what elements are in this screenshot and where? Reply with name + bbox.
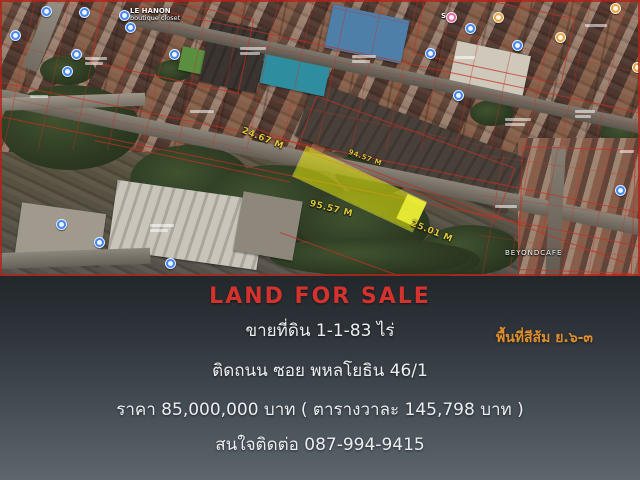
- map-pin-icon: [56, 219, 67, 230]
- map-pin-icon: [41, 6, 52, 17]
- map-label-smudge: [352, 55, 376, 58]
- ad-text-panel: LAND FOR SALE ขายที่ดิน 1-1-83 ไร่ พื้นท…: [0, 276, 640, 480]
- contact-line: สนใจติดต่อ 087-994-9415: [0, 431, 640, 458]
- map-pin-icon: [62, 66, 73, 77]
- map-label-smudge: [620, 150, 634, 153]
- map-label-smudge: [150, 229, 168, 232]
- map-pin-icon: [169, 49, 180, 60]
- map-pin-icon: [453, 90, 464, 101]
- map-label-smudge: [505, 118, 531, 121]
- map-pin-boutique-icon: [446, 12, 457, 23]
- satellite-map: 24.67 M 94.57 M 95.57 M 25.01 M LE HANON…: [0, 0, 640, 276]
- map-pin-icon: [125, 22, 136, 33]
- map-label-smudge: [352, 60, 370, 63]
- map-label-smudge: [505, 123, 525, 126]
- map-pin-icon: [615, 185, 626, 196]
- map-label-smudge: [585, 24, 607, 27]
- street-line: ติดถนน ซอย พหลโยธิน 46/1: [0, 357, 640, 384]
- map-pin-food-icon: [555, 32, 566, 43]
- map-label-smudge: [575, 115, 591, 118]
- map-pin-food-icon: [493, 12, 504, 23]
- map-pin-icon: [165, 258, 176, 269]
- map-label-smudge: [455, 56, 475, 59]
- map-label-smudge: [85, 57, 107, 60]
- map-pin-icon: [465, 23, 476, 34]
- map-label-cafe: BEYONDCAFE: [505, 250, 562, 257]
- map-label-boutique-sub: boutique closet: [130, 14, 180, 22]
- land-sale-ad: 24.67 M 94.57 M 95.57 M 25.01 M LE HANON…: [0, 0, 640, 480]
- map-building: [233, 191, 303, 261]
- price-line: ราคา 85,000,000 บาท ( ตารางวาละ 145,798 …: [0, 396, 640, 423]
- map-label-smudge: [575, 110, 595, 113]
- map-label-smudge: [85, 62, 103, 65]
- map-label-smudge: [495, 205, 517, 208]
- map-label-smudge: [150, 224, 174, 227]
- map-label-smudge: [30, 95, 48, 98]
- map-label-smudge: [240, 47, 266, 50]
- zone-note: พื้นที่สีส้ม ย.๖-๓: [496, 327, 593, 349]
- map-pin-icon: [79, 7, 90, 18]
- map-pin-icon: [10, 30, 21, 41]
- map-label-smudge: [190, 110, 214, 113]
- headline: LAND FOR SALE: [0, 284, 640, 309]
- map-pin-icon: [512, 40, 523, 51]
- map-pin-icon: [425, 48, 436, 59]
- map-pin-food-icon: [610, 3, 621, 14]
- map-pin-food-icon: [632, 62, 640, 73]
- map-label-smudge: [240, 52, 260, 55]
- map-pin-icon: [94, 237, 105, 248]
- map-trees: [270, 238, 470, 276]
- map-pin-icon: [119, 10, 130, 21]
- map-label-boutique: LE HANON boutique closet: [130, 8, 180, 22]
- map-pin-icon: [71, 49, 82, 60]
